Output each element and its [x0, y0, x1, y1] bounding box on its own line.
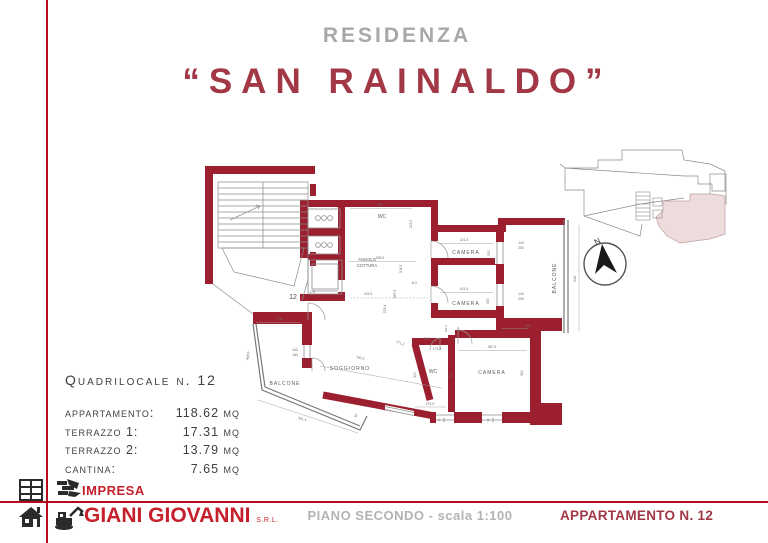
room-label: 12 [289, 294, 297, 301]
dimension-label: 448.5 [246, 351, 251, 360]
info-label: terrazzo 2: [65, 443, 138, 457]
dimension-label: 50 [354, 413, 359, 418]
dimension-label: 421.5 [460, 287, 469, 291]
room-label: BALCONE [552, 263, 558, 294]
info-label: appartamento: [65, 406, 154, 420]
apartment-number-label: APPARTAMENTO N. 12 [560, 508, 755, 523]
key-plan: N [560, 146, 765, 306]
company-name: GIANI GIOVANNI S.R.L. [84, 504, 279, 528]
dimension-label: 304.5 [399, 265, 403, 274]
floor-and-scale-label: PIANO SECONDO - scala 1:100 [280, 508, 540, 523]
dimension-label: 421.5 [460, 238, 469, 242]
room-label: WC [429, 369, 438, 375]
dimension-label: 250 [518, 297, 524, 301]
dimension-label: 250 [525, 324, 531, 328]
dimension-label: 180 [292, 353, 298, 357]
impresa-label: IMPRESA [82, 483, 145, 498]
walls [205, 166, 565, 425]
company-suffix: S.R.L. [256, 517, 278, 524]
room-label: ANGOLO [358, 257, 377, 262]
footer-rule [0, 501, 768, 503]
service-shafts [308, 209, 342, 294]
dimension-label: 780.5 [356, 355, 365, 360]
dimension-label: 278.4 [383, 305, 387, 314]
dimension-label: 497.5 [393, 290, 397, 299]
dimension-label: 320 [377, 203, 383, 207]
dimension-label: 215.5 [409, 220, 413, 229]
info-row: cantina: 7.65 mq [65, 462, 240, 476]
dimension-label: 387.5 [488, 345, 497, 349]
room-label: SOGGIORNO [330, 366, 370, 372]
dimension-label: 300 [413, 372, 417, 378]
dimension-label: 350 [487, 250, 491, 256]
compass-needle-icon [595, 244, 617, 274]
dimension-label: 274.9 [426, 402, 435, 406]
window-grid-icon [19, 479, 43, 501]
dimension-label: 178 [309, 290, 315, 294]
dimension-label: 230 [277, 317, 283, 321]
dimension-label: 360 [520, 370, 524, 376]
room-label: CAMERA [452, 250, 479, 256]
dimension-label: 302 [424, 337, 430, 341]
dimension-label: 110 [411, 281, 417, 285]
floor-plan: WCANGOLOCOTTURACAMERACAMERACAMERASOGGIOR… [190, 148, 585, 448]
dimension-label: 140 [442, 417, 446, 422]
dimension-label: 90 [486, 418, 490, 422]
company-name-text: GIANI GIOVANNI [84, 504, 250, 527]
dimension-label: 70 [437, 418, 441, 422]
compass: N [584, 236, 626, 285]
dimension-label: 265.5 [376, 256, 385, 260]
room-label: CAMERA [452, 301, 479, 307]
house-icon [17, 505, 45, 529]
dimension-label: 215.5 [364, 292, 373, 296]
info-label: cantina: [65, 462, 116, 476]
info-value: 7.65 mq [191, 462, 240, 476]
dimension-label: 271.2 [396, 340, 405, 347]
room-label: BALCONE [270, 381, 301, 387]
bricks-trowel-icon [55, 477, 81, 499]
dimension-label: 140 [518, 241, 524, 245]
room-label: COTTURA [357, 263, 377, 268]
room-label: WC [378, 214, 387, 220]
dimension-label: 169.3 [444, 325, 448, 332]
excavator-icon [52, 504, 84, 530]
info-label: terrazzo 1: [65, 425, 138, 439]
dimension-label: 173.4 [433, 347, 442, 351]
dimension-label: 110 [456, 326, 460, 331]
dimension-label: 561.4 [298, 416, 307, 422]
dimension-label: 140 [518, 292, 524, 296]
compass-north-label: N [593, 236, 603, 247]
dimension-label: 350 [486, 298, 490, 304]
dimension-label: 250 [518, 246, 524, 250]
dimension-label: 140 [292, 348, 298, 352]
page-title: “SAN RAINALDO” [47, 62, 747, 102]
residence-subtitle: RESIDENZA [47, 24, 747, 48]
dimension-label: 202 [449, 372, 453, 378]
dimension-label: 150 [491, 417, 495, 422]
highlighted-unit [656, 194, 725, 243]
title-block: RESIDENZA “SAN RAINALDO” [47, 24, 747, 102]
room-label: CAMERA [478, 370, 505, 376]
